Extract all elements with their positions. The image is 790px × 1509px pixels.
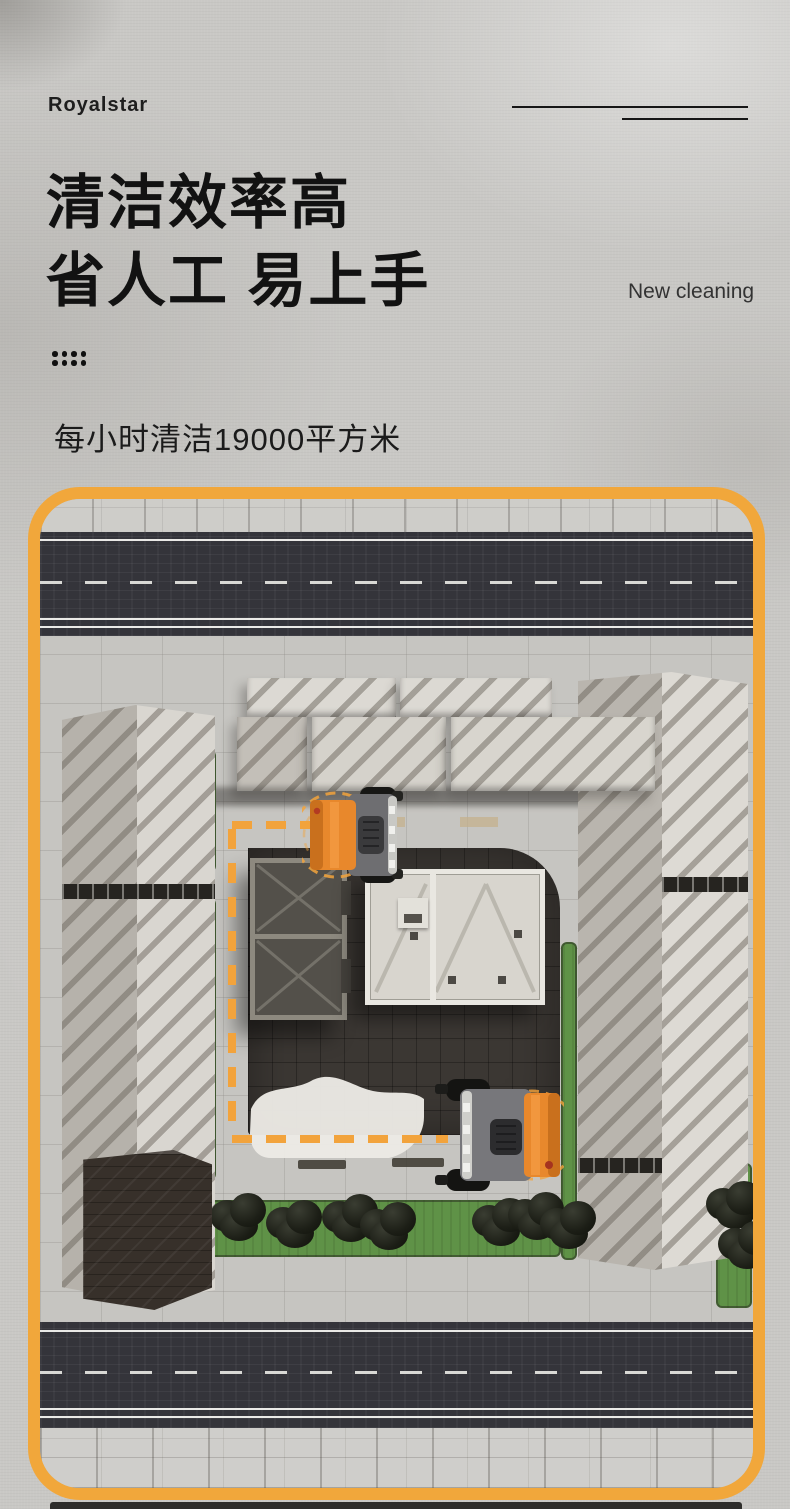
- sidewalk-bottom: [40, 1428, 753, 1488]
- sidewalk-top: [40, 499, 753, 532]
- decor-rule-long: [512, 106, 748, 108]
- tree: [208, 1193, 266, 1241]
- subtitle-text: 每小时清洁19000平方米: [54, 414, 401, 459]
- building-top-upper-2: [400, 678, 552, 717]
- pavement-mark: [298, 1160, 346, 1169]
- building-top-lower-3: [451, 717, 655, 791]
- road-bottom: [40, 1322, 753, 1428]
- promo-page: Royalstar 清洁效率高 省人工 易上手 New cleaning 每小时…: [0, 0, 790, 1509]
- route-dash-vertical: [228, 829, 236, 1135]
- aerial-scene: [40, 499, 753, 1488]
- decor-rule-short: [622, 118, 748, 120]
- page-title-line1: 清洁效率高: [46, 164, 430, 242]
- illustration-frame: [28, 487, 765, 1500]
- brand-logo: Royalstar: [48, 94, 148, 117]
- container-roof-box: [398, 898, 428, 928]
- sweeper-vehicle-lower: [432, 1077, 564, 1193]
- building-top-lower-1: [237, 717, 307, 791]
- tagline-text: New cleaning: [628, 280, 754, 304]
- dots-grid-icon: [52, 351, 90, 369]
- tree: [358, 1202, 416, 1250]
- sweeper-vehicle-upper: [302, 786, 406, 884]
- building-top-upper-1: [247, 678, 396, 717]
- container-building: [365, 869, 545, 1005]
- pavement-patch: [460, 817, 498, 827]
- tree: [264, 1200, 322, 1248]
- building-dark-corner: [75, 1150, 212, 1310]
- route-dash-bottom: [232, 1135, 448, 1143]
- building-top-lower-2: [312, 717, 446, 791]
- next-section-edge: [50, 1502, 742, 1509]
- tree: [716, 1221, 753, 1269]
- page-title: 清洁效率高 省人工 易上手: [46, 164, 430, 320]
- road-top: [40, 532, 753, 636]
- page-title-line2: 省人工 易上手: [46, 242, 430, 320]
- pond-shape: [245, 1059, 430, 1164]
- tree: [538, 1201, 596, 1249]
